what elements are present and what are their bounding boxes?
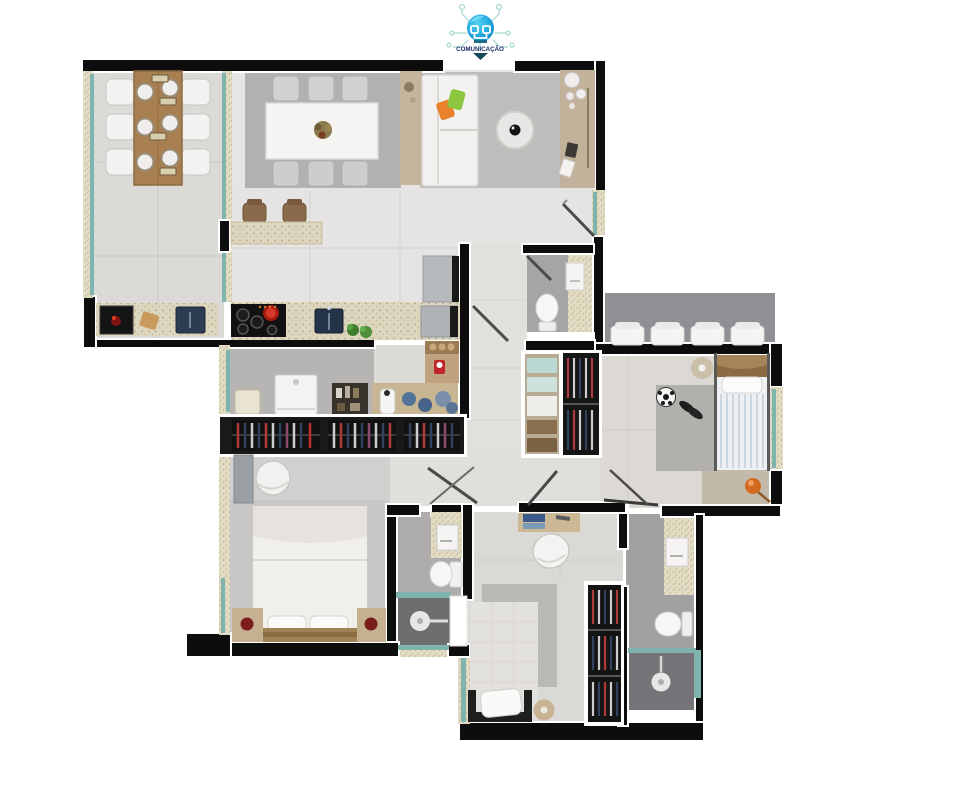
svg-text:COMUNICAÇÃO: COMUNICAÇÃO <box>456 46 504 53</box>
